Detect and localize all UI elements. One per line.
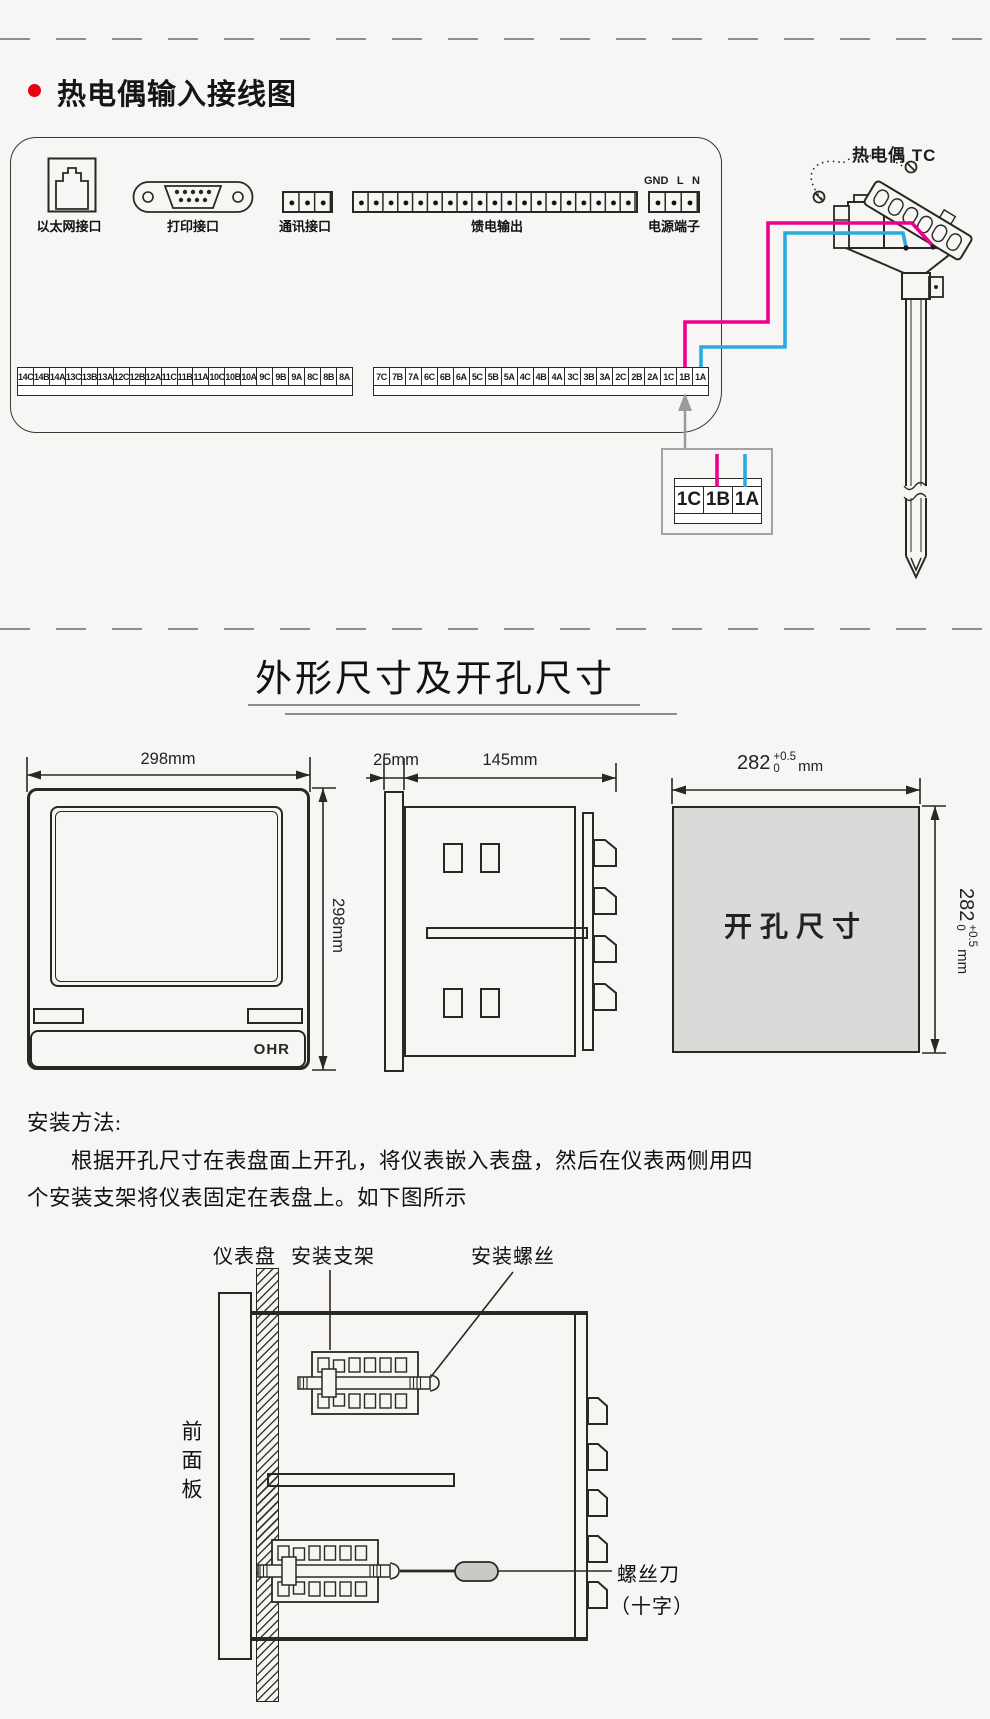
- side-terminal-bumps: [594, 840, 616, 1010]
- screw-leader-line: [430, 1272, 513, 1378]
- screwdriver-handle: [455, 1562, 498, 1581]
- install-terminal-bumps: [588, 1398, 607, 1608]
- bullet-icon: [28, 84, 41, 97]
- mounting-bracket-top: [298, 1352, 439, 1414]
- install-paragraph-line1: 根据开孔尺寸在表盘面上开孔，将仪表嵌入表盘，然后在仪表两侧用四: [71, 1144, 753, 1175]
- mounting-bracket-bottom: [258, 1540, 399, 1602]
- wiring-section-title: 热电偶输入接线图: [57, 71, 297, 113]
- install-heading: 安装方法:: [27, 1106, 121, 1137]
- divider-top: [0, 38, 990, 40]
- divider-middle: [0, 628, 990, 630]
- wiring-overlay: [0, 130, 990, 600]
- wire-negative: [701, 233, 906, 367]
- dimension-lines-overlay: [0, 680, 990, 1080]
- install-paragraph-line2: 个安装支架将仪表固定在表盘上。如下图所示: [27, 1181, 467, 1212]
- install-overlay: [0, 1230, 990, 1719]
- manual-page: 热电偶输入接线图 以太网接口 打印接口 通讯接口 馈电输出 GNDLN 电源端子…: [0, 0, 990, 1719]
